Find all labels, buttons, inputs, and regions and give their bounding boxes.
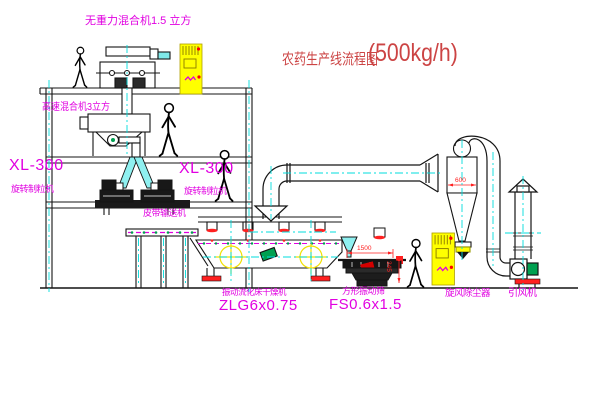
- label-granulator-right-name: 旋转制粒机: [184, 187, 227, 196]
- dimension-screen-height: 345: [385, 261, 392, 272]
- exhaust-duct: [255, 154, 438, 221]
- fan-motor: [527, 263, 538, 275]
- label-dryer-model: ZLG6x0.75: [219, 298, 298, 313]
- screen-feed-funnel: [341, 237, 357, 251]
- label-granulator-left-model: XL-300: [9, 158, 64, 174]
- page-title-capacity: (500kg/h): [368, 41, 458, 66]
- label-fan: 引风机: [508, 289, 537, 299]
- control-cabinet-top: [180, 44, 202, 94]
- high-speed-mixer: [80, 114, 150, 157]
- label-granulator-right-model: XL-300: [179, 161, 234, 177]
- vibrating-screen: [338, 228, 406, 286]
- label-gravity-mixer: 无重力混合机1.5 立方: [85, 16, 191, 27]
- label-screen-model: FS0.6x1.5: [329, 297, 402, 312]
- label-screen-name: 方形振动筛: [342, 287, 385, 296]
- dimension-screen-length: 1500: [357, 246, 371, 253]
- fluid-bed-dryer: [196, 217, 342, 281]
- hood-stubs: [207, 222, 326, 232]
- y-chute: [118, 157, 155, 188]
- person-figure: [408, 240, 424, 288]
- pump-dot: [111, 138, 115, 142]
- cad-drawing-canvas: 农药生产线流程图 (500kg/h) 无重力混合机1.5 立方 高速混合机3立方…: [0, 0, 600, 403]
- label-high-speed-mixer: 高速混合机3立方: [42, 103, 110, 113]
- page-title: 农药生产线流程图: [282, 52, 378, 67]
- label-belt-conveyor: 皮带输送机: [143, 209, 186, 218]
- mixer-outlet-stub: [158, 52, 170, 59]
- label-dryer-name: 振动流化床干燥机: [222, 288, 286, 297]
- person-figure: [73, 47, 86, 87]
- person-figure: [160, 104, 178, 156]
- control-cabinet-ground: [432, 233, 454, 285]
- induced-draft-fan: [510, 259, 540, 288]
- label-cyclone: 旋风除尘器: [445, 289, 490, 299]
- dimension-cyclone: 600: [455, 178, 466, 185]
- label-granulator-left-name: 旋转制粒机: [11, 185, 54, 194]
